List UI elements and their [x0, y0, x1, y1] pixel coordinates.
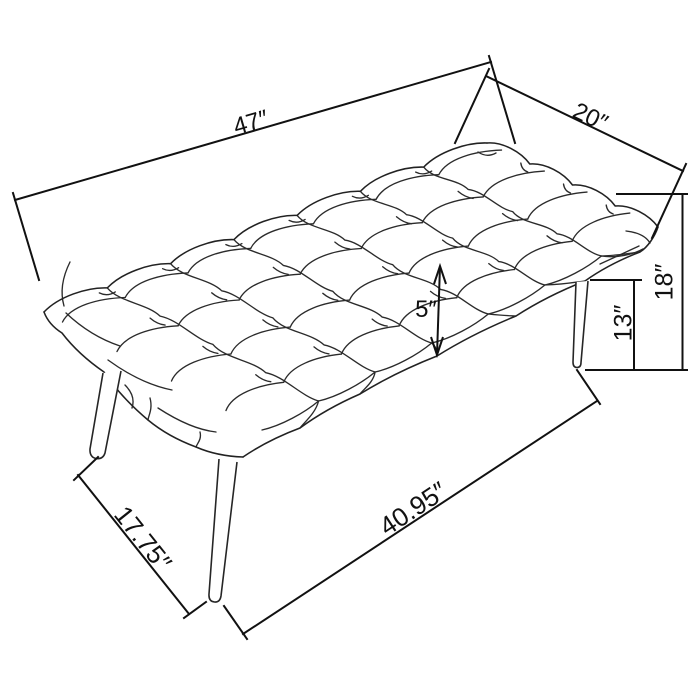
svg-text:5″: 5″ — [415, 296, 437, 323]
svg-text:18″: 18″ — [651, 264, 679, 301]
svg-text:13″: 13″ — [610, 305, 638, 342]
